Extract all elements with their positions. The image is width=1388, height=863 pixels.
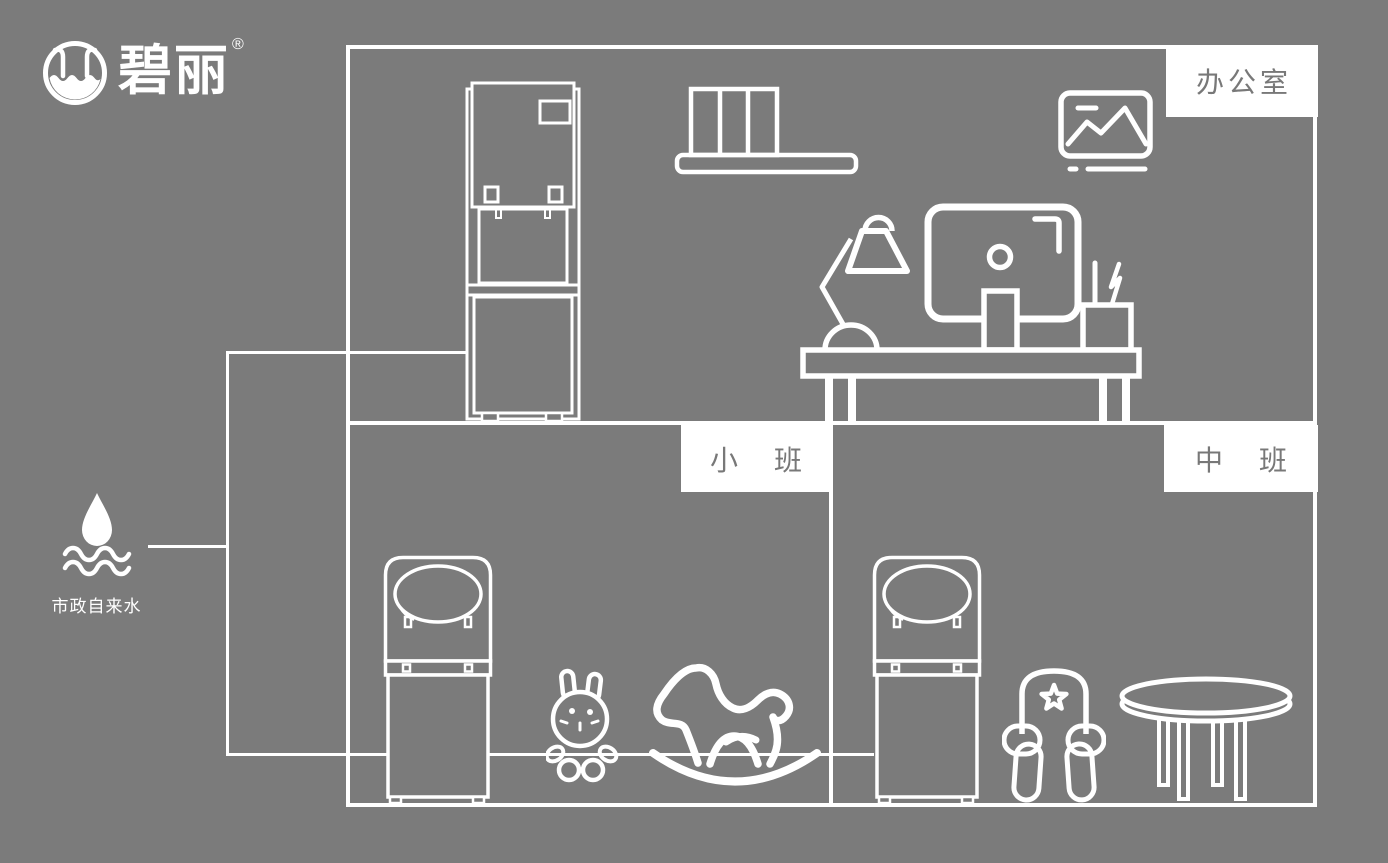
picture-frame [1057, 89, 1155, 177]
rabbit-toy [546, 667, 626, 783]
bookshelf [674, 85, 859, 177]
room-label-middle-class: 中 班 [1164, 425, 1318, 492]
brand-logo: 碧丽 ® [42, 38, 244, 106]
shelf-board-icon [677, 155, 856, 172]
star-icon [1042, 685, 1067, 709]
computer-monitor-icon [928, 207, 1078, 350]
round-table [1118, 676, 1294, 802]
water-cup-circle-icon [42, 38, 110, 106]
kindergarten-water-dispenser-middle [870, 553, 984, 804]
standing-water-dispenser [464, 81, 582, 425]
office-desk-scene [795, 193, 1147, 425]
kids-chair [1002, 664, 1106, 804]
kindergarten-water-dispenser-junior [381, 553, 495, 804]
pipe-source-horizontal [148, 545, 228, 548]
desk-lamp-icon [822, 218, 907, 351]
room-label-office-text: 办公室 [1192, 61, 1292, 101]
room-label-office: 办公室 [1166, 45, 1318, 117]
rocking-horse [640, 650, 830, 800]
books-icon [691, 89, 777, 155]
office-desk-icon [803, 350, 1139, 421]
water-drop-waves-icon [61, 492, 133, 578]
room-label-middle-text: 中 班 [1191, 439, 1291, 479]
pen-holder-icon [1083, 263, 1131, 350]
water-source: 市政自来水 [44, 492, 149, 617]
room-label-junior-text: 小 班 [706, 439, 806, 479]
room-label-junior-class: 小 班 [681, 425, 831, 492]
registered-trademark: ® [232, 36, 244, 54]
installation-diagram: 办公室 小 班 中 班 碧丽 ® 市政自来水 [0, 0, 1388, 863]
pipe-riser-vertical [226, 351, 229, 756]
brand-name: 碧丽 [118, 38, 230, 104]
water-source-label: 市政自来水 [44, 592, 149, 617]
